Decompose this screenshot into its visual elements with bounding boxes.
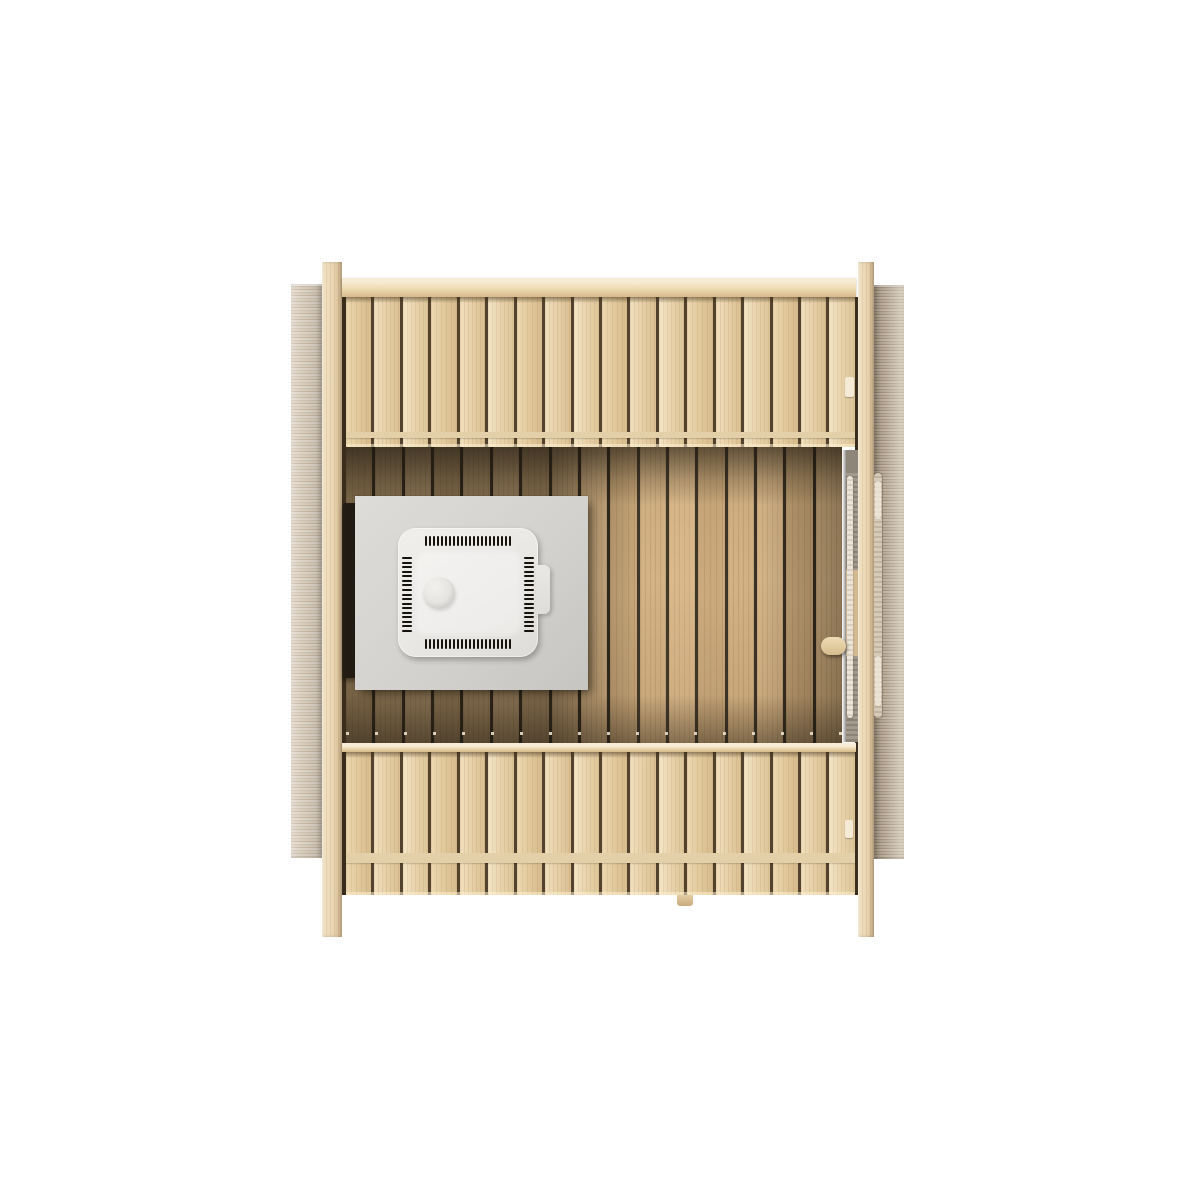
vent-slot: [445, 639, 447, 649]
vent-slot: [469, 536, 471, 546]
vent-slot: [457, 639, 459, 649]
vent-slot: [497, 639, 499, 649]
bench-slat: [744, 297, 769, 447]
sauna-top-view-render: [0, 0, 1200, 1200]
bench-slat: [374, 752, 399, 895]
vent-slot: [524, 625, 534, 627]
vent-slot: [524, 584, 534, 586]
bottom-bench: [346, 752, 855, 895]
heater-vent-column-right: [524, 557, 534, 632]
bench-slat: [687, 297, 712, 447]
vent-slot: [453, 639, 455, 649]
bench-slat: [403, 752, 428, 895]
vent-slot: [461, 536, 463, 546]
floor-screw-row: [346, 732, 842, 735]
vent-slot: [524, 612, 534, 614]
vent-slot: [469, 639, 471, 649]
vent-slot: [524, 580, 534, 582]
vent-slot: [465, 639, 467, 649]
vent-slot: [449, 639, 451, 649]
vent-slot: [505, 639, 507, 649]
top-bench: [346, 297, 855, 447]
vent-slot: [524, 566, 534, 568]
bench-slat: [630, 752, 655, 895]
vent-slot: [501, 639, 503, 649]
door-handle: [821, 637, 846, 655]
vent-slot: [449, 536, 451, 546]
vent-slot: [465, 536, 467, 546]
bench-slat: [801, 752, 826, 895]
door-glass-edge: [874, 473, 882, 718]
bench-cross-support: [346, 432, 855, 438]
vent-slot: [441, 536, 443, 546]
vent-slot: [473, 536, 475, 546]
vent-slot: [402, 594, 412, 596]
rail-shadow: [346, 297, 855, 303]
vent-slot: [402, 566, 412, 568]
bench-slat: [488, 752, 513, 895]
bench-slat: [801, 297, 826, 447]
door-hinge-knuckle: [875, 481, 881, 519]
vent-slot: [429, 639, 431, 649]
heater-steam-outlet: [423, 577, 455, 609]
vent-slot: [429, 536, 431, 546]
vent-slot: [402, 580, 412, 582]
bench-slat: [460, 297, 485, 447]
vent-slot: [509, 536, 511, 546]
bench-slat: [687, 752, 712, 895]
vent-slot: [445, 536, 447, 546]
vent-slot: [437, 536, 439, 546]
vent-slot: [457, 536, 459, 546]
bench-slat: [403, 297, 428, 447]
vent-slot: [402, 621, 412, 623]
bench-slat: [716, 297, 741, 447]
vent-slot: [524, 594, 534, 596]
bench-foot-tab: [677, 895, 693, 906]
bench-edge-highlight: [346, 892, 855, 895]
vent-slot: [477, 639, 479, 649]
vent-slot: [524, 616, 534, 618]
bench-slat: [574, 297, 599, 447]
vent-slot: [461, 639, 463, 649]
vent-slot: [481, 536, 483, 546]
vent-slot: [524, 575, 534, 577]
left-corner-post: [322, 262, 342, 937]
vent-slot: [402, 625, 412, 627]
vent-slot: [402, 607, 412, 609]
bench-slat: [659, 297, 684, 447]
bench-cross-support: [346, 853, 855, 863]
vent-slot: [402, 575, 412, 577]
vent-slot: [402, 630, 412, 632]
bench-slat: [659, 752, 684, 895]
bench-slat: [716, 752, 741, 895]
bench-slat: [744, 752, 769, 895]
door-hinge-knuckle: [875, 656, 881, 706]
vent-slot: [425, 639, 427, 649]
vent-slot: [481, 639, 483, 649]
bench-fitting-notch: [845, 820, 853, 838]
bench-slat: [602, 752, 627, 895]
vent-slot: [524, 603, 534, 605]
vent-slot: [473, 639, 475, 649]
bench-slat: [374, 297, 399, 447]
left-side-wall: [291, 284, 322, 858]
bench-slat: [545, 752, 570, 895]
bench-slat: [346, 297, 371, 447]
door-frame-highlight: [847, 476, 853, 718]
vent-slot: [524, 621, 534, 623]
bench-slat: [545, 297, 570, 447]
vent-slot: [524, 557, 534, 559]
vent-slot: [489, 536, 491, 546]
vent-slot: [524, 598, 534, 600]
vent-slot: [402, 612, 412, 614]
vent-slot: [501, 536, 503, 546]
vent-slot: [441, 639, 443, 649]
bench-slat: [431, 752, 456, 895]
vent-slot: [493, 639, 495, 649]
bench-slat: [346, 752, 371, 895]
vent-slot: [433, 536, 435, 546]
vent-slot: [425, 536, 427, 546]
bottom-rail: [342, 743, 856, 752]
bench-slat: [517, 297, 542, 447]
vent-slot: [402, 584, 412, 586]
vent-slot: [402, 562, 412, 564]
bottom-bench-slats: [346, 752, 855, 895]
vent-slot: [402, 571, 412, 573]
bench-slat: [488, 297, 513, 447]
bench-shadow-on-floor: [346, 695, 842, 743]
heater-vent-column-left: [402, 557, 412, 632]
vent-slot: [489, 639, 491, 649]
vent-slot: [433, 639, 435, 649]
vent-slot: [402, 598, 412, 600]
bench-slat: [773, 752, 798, 895]
vent-slot: [505, 536, 507, 546]
bench-slat: [602, 297, 627, 447]
bench-slat: [517, 752, 542, 895]
bench-fitting-notch: [845, 377, 854, 397]
vent-slot: [497, 536, 499, 546]
vent-slot: [524, 607, 534, 609]
vent-slot: [524, 589, 534, 591]
vent-slot: [509, 639, 511, 649]
top-bench-slats: [346, 297, 855, 447]
vent-slot: [524, 562, 534, 564]
rail-shadow: [346, 752, 855, 758]
vent-slot: [402, 616, 412, 618]
bench-slat: [829, 297, 854, 447]
sauna-heater: [398, 528, 538, 657]
vent-slot: [402, 589, 412, 591]
heater-vent-row-top: [425, 536, 511, 546]
bench-slat: [431, 297, 456, 447]
vent-slot: [402, 557, 412, 559]
vent-slot: [477, 536, 479, 546]
vent-slot: [485, 639, 487, 649]
heater-vent-row-bottom: [425, 639, 511, 649]
vent-slot: [524, 630, 534, 632]
bench-slat: [630, 297, 655, 447]
vent-slot: [493, 536, 495, 546]
bench-slat: [460, 752, 485, 895]
bench-slat: [574, 752, 599, 895]
top-rail: [342, 278, 856, 297]
vent-slot: [402, 603, 412, 605]
vent-slot: [453, 536, 455, 546]
heater-control-tab: [536, 565, 550, 614]
right-corner-post: [858, 262, 874, 937]
vent-slot: [437, 639, 439, 649]
bench-slat: [773, 297, 798, 447]
vent-slot: [524, 571, 534, 573]
vent-slot: [485, 536, 487, 546]
